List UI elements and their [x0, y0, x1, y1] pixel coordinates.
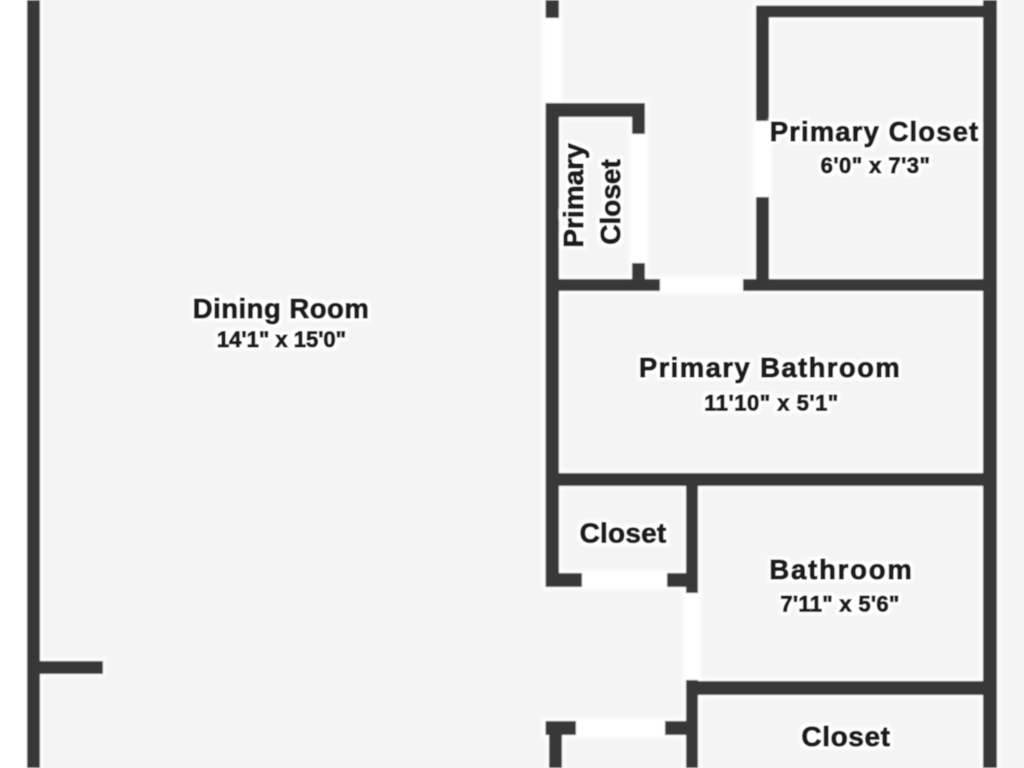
svg-text:7'11" x 5'6": 7'11" x 5'6" — [780, 592, 899, 617]
svg-text:Closet: Closet — [801, 721, 890, 752]
svg-text:Primary Bathroom: Primary Bathroom — [639, 352, 901, 383]
svg-text:Closet: Closet — [580, 518, 667, 549]
svg-text:Dining Room: Dining Room — [193, 293, 370, 324]
svg-text:6'0" x 7'3": 6'0" x 7'3" — [821, 153, 931, 178]
svg-text:Closet: Closet — [595, 159, 626, 245]
svg-text:Primary: Primary — [558, 143, 589, 248]
svg-text:Primary Closet: Primary Closet — [770, 116, 980, 147]
svg-text:14'1" x 15'0": 14'1" x 15'0" — [217, 327, 346, 352]
svg-text:Bathroom: Bathroom — [769, 554, 913, 585]
svg-text:11'10" x 5'1": 11'10" x 5'1" — [704, 391, 838, 416]
